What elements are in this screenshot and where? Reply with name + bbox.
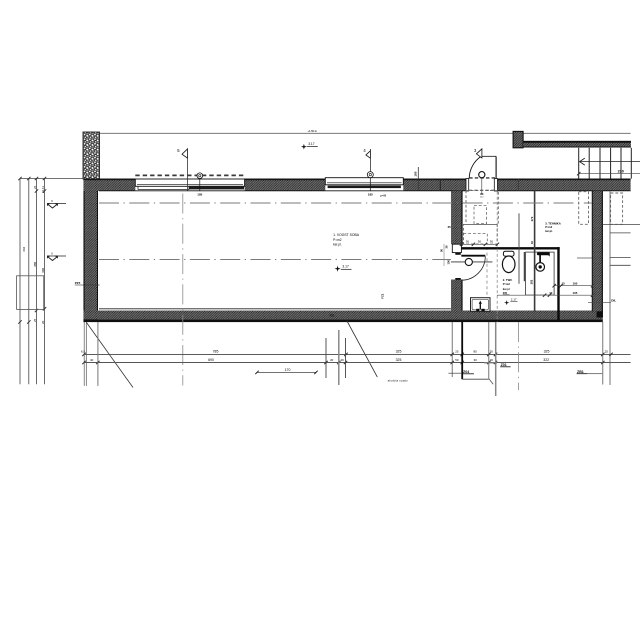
svg-text:20: 20 bbox=[41, 320, 45, 324]
svg-text:FZ1: FZ1 bbox=[330, 314, 335, 318]
svg-text:325: 325 bbox=[396, 350, 402, 354]
svg-text:DIL: DIL bbox=[611, 299, 616, 303]
svg-text:Z04: Z04 bbox=[463, 370, 469, 374]
svg-text:690: 690 bbox=[208, 358, 214, 362]
svg-text:2.17: 2.17 bbox=[511, 298, 517, 302]
svg-text:85: 85 bbox=[474, 350, 478, 354]
svg-text:25: 25 bbox=[605, 350, 609, 354]
svg-text:26: 26 bbox=[33, 185, 37, 189]
svg-text:21.11: 21.11 bbox=[41, 186, 45, 193]
svg-text:3. TEHNIKA: 3. TEHNIKA bbox=[545, 221, 561, 225]
svg-text:185: 185 bbox=[197, 193, 202, 197]
svg-text:p=90: p=90 bbox=[380, 195, 386, 198]
svg-text:25: 25 bbox=[455, 350, 459, 354]
svg-text:434: 434 bbox=[22, 247, 26, 252]
svg-text:ab ploča u padu: ab ploča u padu bbox=[388, 379, 408, 383]
svg-text:100: 100 bbox=[446, 260, 450, 265]
svg-text:25: 25 bbox=[448, 225, 452, 229]
svg-text:6,5: 6,5 bbox=[81, 350, 85, 354]
svg-text:325: 325 bbox=[396, 358, 402, 362]
svg-text:ker.pl: ker.pl bbox=[503, 287, 510, 291]
svg-text:2. TWC: 2. TWC bbox=[503, 278, 512, 282]
svg-text:230: 230 bbox=[618, 169, 624, 173]
svg-text:181: 181 bbox=[530, 279, 534, 284]
svg-text:26: 26 bbox=[341, 358, 345, 362]
svg-text:322: 322 bbox=[543, 358, 549, 362]
svg-text:170: 170 bbox=[285, 368, 291, 372]
svg-text:172: 172 bbox=[530, 216, 534, 221]
svg-text:1. VOGST SOBA: 1. VOGST SOBA bbox=[333, 233, 360, 237]
svg-text:ker.pl.: ker.pl. bbox=[545, 229, 553, 233]
svg-text:36: 36 bbox=[478, 240, 482, 244]
svg-text:36: 36 bbox=[466, 240, 470, 244]
svg-text:185: 185 bbox=[414, 171, 418, 176]
svg-text:325: 325 bbox=[544, 350, 550, 354]
svg-text:785: 785 bbox=[213, 350, 219, 354]
svg-text:30: 30 bbox=[490, 350, 494, 354]
svg-text:ker.pl.: ker.pl. bbox=[333, 243, 342, 247]
svg-text:P=m2: P=m2 bbox=[545, 225, 553, 229]
svg-text:10: 10 bbox=[549, 291, 553, 295]
svg-text:105: 105 bbox=[572, 291, 577, 295]
svg-text:90: 90 bbox=[439, 249, 443, 252]
svg-text:20: 20 bbox=[330, 358, 334, 362]
svg-text:P=m2: P=m2 bbox=[333, 238, 342, 242]
svg-text:205: 205 bbox=[503, 291, 508, 295]
svg-text:25: 25 bbox=[33, 318, 37, 322]
svg-text:368: 368 bbox=[41, 268, 45, 273]
svg-text:3.17: 3.17 bbox=[342, 264, 349, 268]
svg-text:ZB1: ZB1 bbox=[577, 370, 584, 374]
svg-text:P=m2: P=m2 bbox=[503, 282, 511, 286]
svg-text:3.17: 3.17 bbox=[308, 142, 315, 146]
svg-text:185: 185 bbox=[368, 192, 373, 196]
svg-text:90: 90 bbox=[480, 192, 484, 196]
svg-text:+1.50 m: +1.50 m bbox=[307, 129, 317, 133]
svg-text:15: 15 bbox=[562, 281, 566, 285]
svg-text:30: 30 bbox=[474, 358, 478, 362]
svg-text:100: 100 bbox=[573, 281, 578, 285]
svg-text:36: 36 bbox=[490, 240, 494, 244]
svg-text:36: 36 bbox=[445, 245, 449, 248]
svg-text:FZ1: FZ1 bbox=[381, 293, 385, 299]
svg-text:50: 50 bbox=[455, 358, 459, 362]
svg-text:388: 388 bbox=[33, 262, 37, 267]
svg-text:40: 40 bbox=[90, 358, 94, 362]
svg-text:20: 20 bbox=[490, 358, 494, 362]
svg-text:PZ5: PZ5 bbox=[75, 281, 81, 285]
